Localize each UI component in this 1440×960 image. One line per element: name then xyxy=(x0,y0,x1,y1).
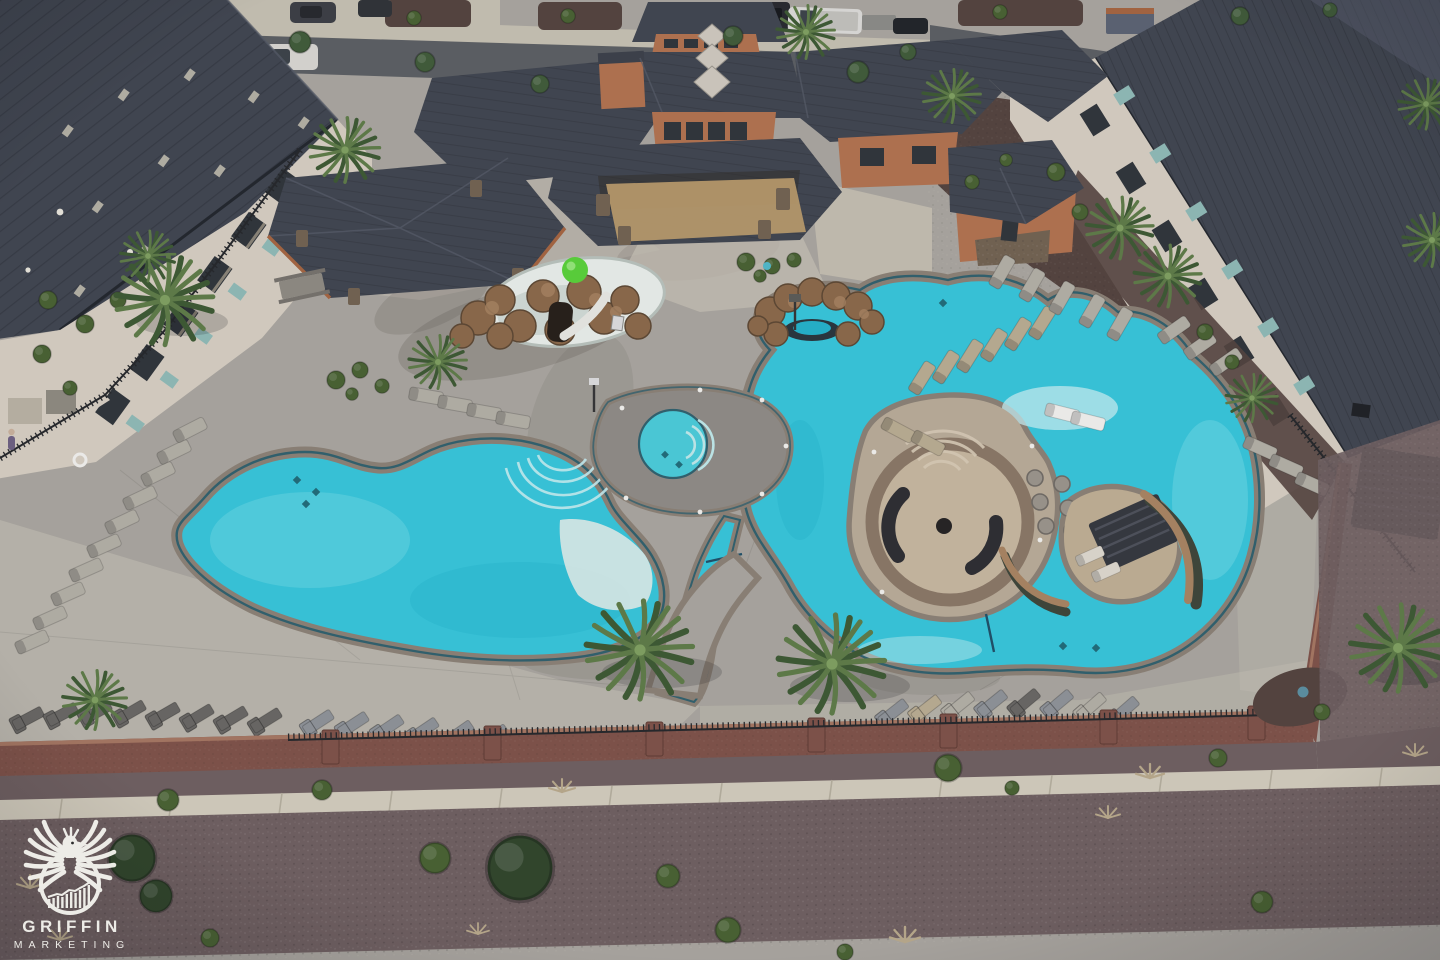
aerial-pool-photo: GRIFFIN MARKETING xyxy=(0,0,1440,960)
eagle-eye xyxy=(71,842,74,845)
watermark-line1: GRIFFIN xyxy=(22,917,122,936)
vignette xyxy=(0,0,1440,960)
scene-canvas: GRIFFIN MARKETING xyxy=(0,0,1440,960)
watermark-line2: MARKETING xyxy=(14,939,130,951)
